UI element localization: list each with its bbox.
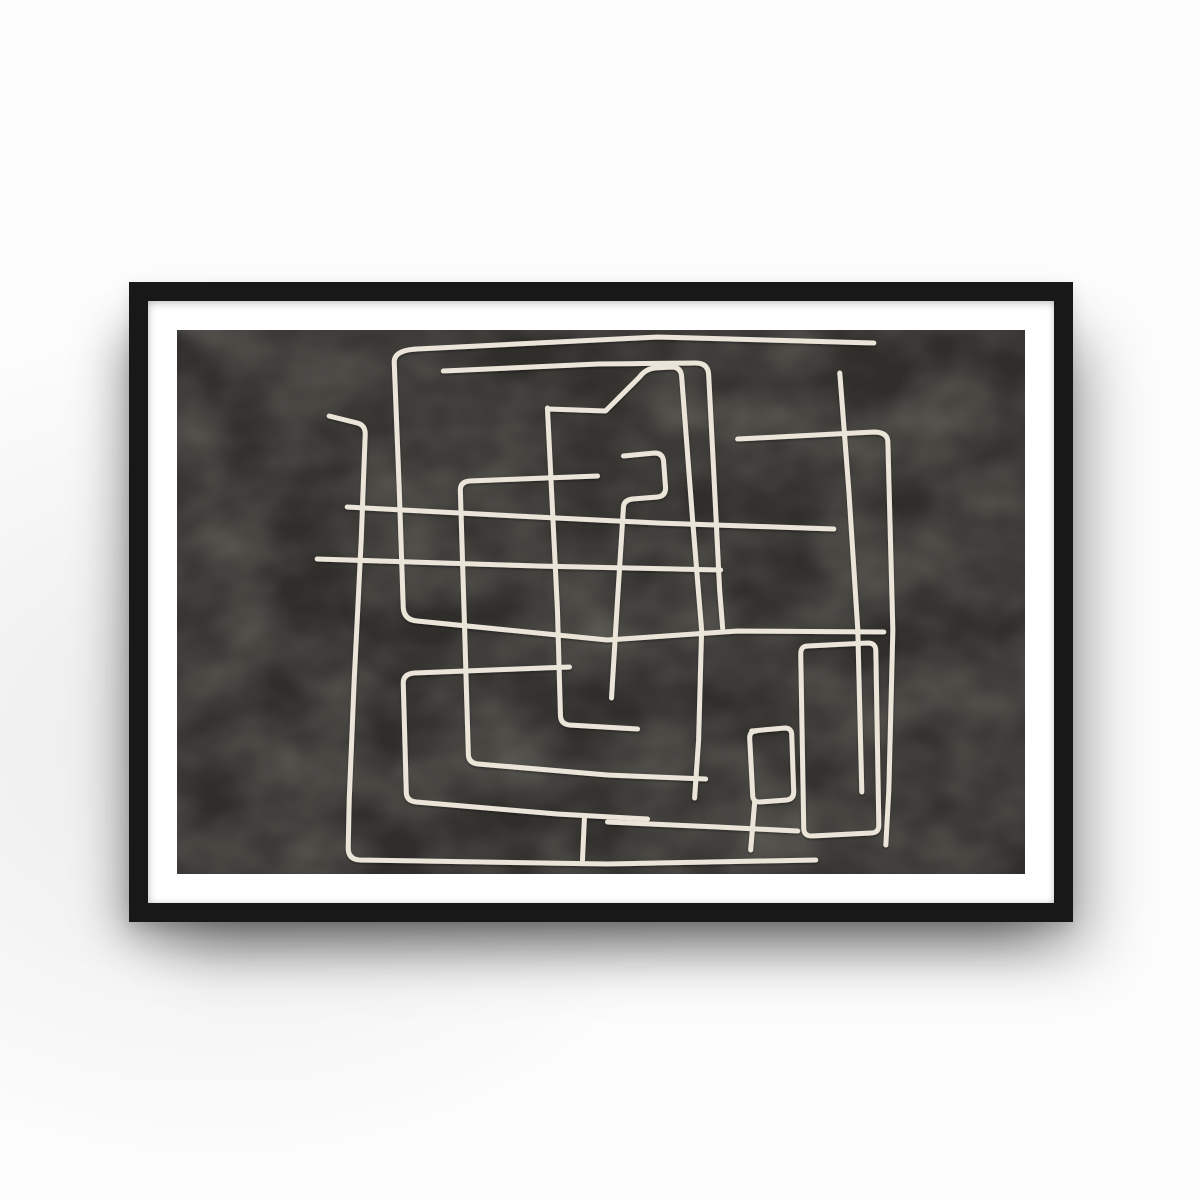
- line-art: [177, 330, 1025, 874]
- art-texture-grain: [177, 330, 1025, 874]
- artwork: [177, 330, 1025, 874]
- wall: [0, 0, 1200, 1200]
- mat: [148, 301, 1054, 903]
- poster-frame: [129, 282, 1073, 922]
